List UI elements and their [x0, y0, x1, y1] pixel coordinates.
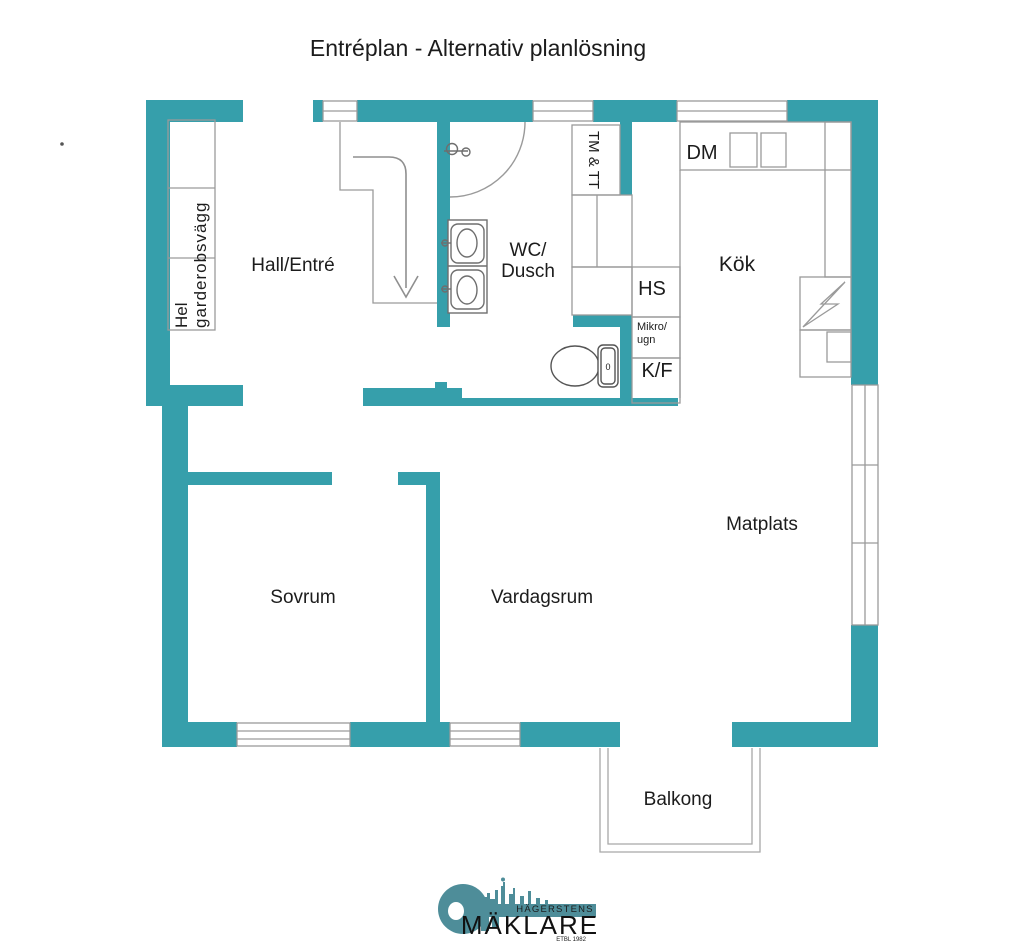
wall-left-upper — [146, 100, 170, 385]
label-wardrobe-line1: Hel — [172, 302, 191, 328]
stray-dot — [60, 142, 64, 146]
label-micro-line2: ugn — [637, 334, 655, 346]
counter-right — [825, 122, 851, 277]
wall-bedroom-living-partition — [426, 472, 440, 722]
wall-corridor-south-thick — [363, 388, 462, 406]
wall-top-3 — [357, 100, 533, 122]
wall-bottom-2 — [350, 722, 450, 747]
wall-left-lower — [162, 406, 188, 747]
washbasins — [441, 220, 487, 313]
label-hs: HS — [638, 278, 666, 300]
room-label-living: Vardagsrum — [491, 587, 593, 608]
label-fridge-freezer: K/F — [641, 360, 672, 382]
entry-arrow — [353, 157, 418, 297]
wall-right-upper — [851, 100, 878, 385]
room-label-hall: Hall/Entré — [251, 255, 334, 276]
floorplan-page: Entréplan - Alternativ planlösning — [0, 0, 1024, 952]
wall-hall-stub — [146, 385, 243, 406]
logo-established-text: ETBL 1982 — [556, 937, 586, 943]
wall-top-2 — [313, 100, 323, 122]
floorplan-canvas: Entréplan - Alternativ planlösning — [0, 0, 1024, 952]
wall-wc-south-thin — [462, 398, 678, 406]
page-title: Entréplan - Alternativ planlösning — [310, 35, 646, 61]
room-label-wc-line2: Dusch — [501, 261, 555, 282]
window-top-tmtt — [533, 101, 593, 121]
window-top-kitchen — [677, 101, 787, 121]
room-label-wc-line1: WC/ — [510, 240, 548, 261]
window-bottom-bedroom — [237, 723, 350, 746]
label-dishwasher: DM — [686, 142, 717, 164]
room-label-bedroom: Sovrum — [270, 587, 335, 608]
wall-kitchen-wc-upper — [620, 100, 632, 195]
shower-enclosure — [450, 122, 525, 197]
windows — [237, 101, 878, 746]
room-label-balcony: Balkong — [644, 789, 713, 810]
cabinet-below-stove — [800, 330, 851, 377]
kitchen-sink-bowl-1 — [730, 133, 757, 167]
window-right-dining — [852, 385, 878, 625]
kitchen-sink-bowl-2 — [761, 133, 786, 167]
wall-doorpost-bump — [435, 382, 447, 390]
wall-kitchen-wc-lower — [620, 315, 632, 406]
room-label-dining: Matplats — [726, 514, 798, 535]
tower-ball — [501, 878, 505, 882]
walls — [146, 100, 878, 747]
skyline-silhouette — [483, 882, 548, 904]
room-label-kitchen: Kök — [719, 253, 756, 276]
label-wardrobe-line2: garderobsvägg — [191, 202, 210, 328]
label-toilet-mark: 0 — [605, 362, 610, 372]
window-top-hall — [323, 101, 357, 121]
stair-outline — [340, 122, 437, 303]
wall-bottom-3 — [520, 722, 620, 747]
label-washer-dryer: TM & TT — [585, 131, 602, 189]
window-bottom-living — [450, 723, 520, 746]
wall-top-4 — [593, 100, 677, 122]
wall-bedroom-north — [188, 472, 332, 485]
label-micro-line1: Mikro/ — [637, 321, 668, 333]
agency-logo: HÄGERSTENS MÄKLARE ETBL 1982 — [438, 878, 599, 944]
logo-name-text: MÄKLARE — [461, 910, 599, 940]
wall-bottom-4 — [732, 722, 878, 747]
stove-flash-icon — [803, 282, 845, 327]
